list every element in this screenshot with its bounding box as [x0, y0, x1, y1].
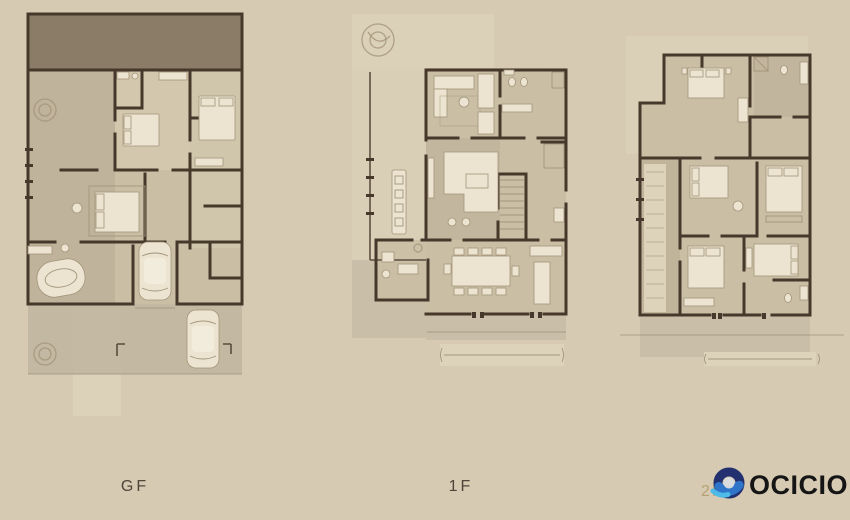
- bed: [682, 68, 731, 98]
- bed: [746, 244, 798, 276]
- brand-logo: OCICIO: [710, 464, 848, 506]
- bed: [89, 186, 145, 236]
- floor-label-gf: GF: [25, 478, 245, 496]
- planter: [644, 164, 666, 312]
- floor-plan-1f-drawing: [348, 8, 574, 420]
- floor-plan-2f: [612, 8, 850, 420]
- floor-plans-page: GF: [0, 0, 850, 520]
- sideboard: [392, 170, 406, 234]
- brand-name: OCICIO: [749, 472, 848, 499]
- floor-plan-1f: [348, 8, 574, 420]
- bed: [199, 96, 235, 140]
- floor-plan-gf: [25, 8, 245, 420]
- floor-plan-2f-drawing: [612, 8, 850, 420]
- floor-label-1f: 1F: [348, 478, 574, 496]
- planter: [440, 344, 564, 366]
- car-icon: [139, 242, 171, 300]
- bed: [690, 166, 728, 198]
- floor-plan-gf-drawing: [25, 8, 245, 420]
- bed: [123, 114, 159, 146]
- brand-logo-icon: [710, 464, 746, 506]
- car-icon: [187, 310, 219, 368]
- planter: [704, 352, 820, 366]
